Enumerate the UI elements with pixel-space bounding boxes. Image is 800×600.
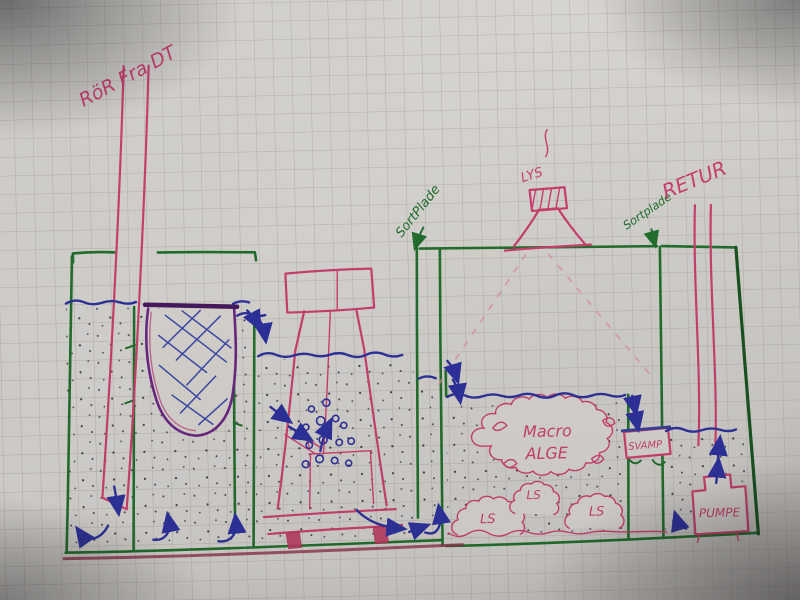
- macro-algae-label-1: Macro: [523, 421, 572, 441]
- sponge-box: SVAMP: [621, 427, 672, 458]
- sump-diagram: Macro ALGE LS LS LS SVAMP: [0, 0, 800, 600]
- refugium-step: [446, 371, 447, 396]
- live-rock-label-b: LS: [526, 488, 541, 502]
- macro-algae-label-2: ALGE: [524, 443, 569, 463]
- pump-label: PUMPE: [699, 505, 741, 520]
- live-rock-label-a: LS: [480, 512, 496, 527]
- photo-of-sketch: Macro ALGE LS LS LS SVAMP: [0, 0, 800, 600]
- live-rock-label-c: LS: [589, 504, 605, 519]
